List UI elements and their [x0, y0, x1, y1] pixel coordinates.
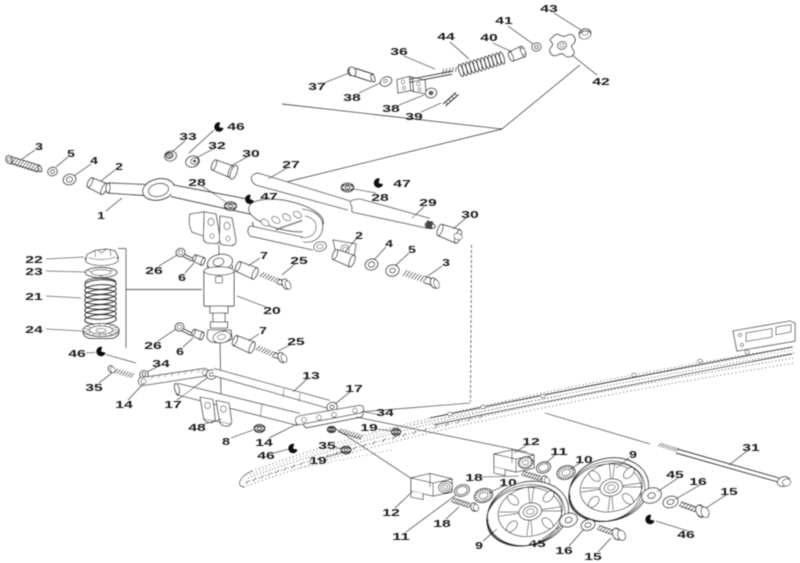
svg-text:30: 30	[461, 209, 479, 221]
svg-text:30: 30	[242, 148, 260, 160]
svg-text:17: 17	[345, 383, 363, 395]
svg-text:28: 28	[371, 192, 389, 204]
svg-text:35: 35	[318, 440, 336, 452]
svg-text:16: 16	[689, 476, 707, 488]
svg-text:6: 6	[178, 272, 186, 284]
svg-text:7: 7	[259, 325, 267, 337]
svg-text:33: 33	[179, 131, 197, 143]
svg-text:14: 14	[115, 399, 133, 411]
svg-text:12: 12	[522, 436, 540, 448]
svg-text:38: 38	[382, 103, 400, 115]
svg-text:29: 29	[419, 197, 437, 209]
svg-text:42: 42	[592, 76, 610, 88]
svg-text:27: 27	[282, 159, 300, 171]
svg-text:5: 5	[67, 148, 75, 160]
svg-text:35: 35	[85, 382, 103, 394]
svg-text:9: 9	[629, 449, 637, 461]
svg-text:48: 48	[188, 422, 206, 434]
svg-text:8: 8	[222, 436, 230, 448]
svg-text:45: 45	[528, 538, 546, 550]
svg-text:14: 14	[255, 437, 273, 449]
svg-text:1: 1	[97, 210, 105, 222]
svg-text:10: 10	[499, 477, 517, 489]
svg-text:46: 46	[68, 348, 86, 360]
svg-text:41: 41	[495, 15, 513, 27]
svg-text:12: 12	[382, 507, 400, 519]
svg-text:11: 11	[392, 531, 410, 543]
svg-text:37: 37	[308, 81, 326, 93]
svg-text:26: 26	[145, 265, 163, 277]
svg-text:25: 25	[290, 255, 308, 267]
svg-text:2: 2	[115, 161, 123, 173]
svg-text:19: 19	[309, 455, 327, 467]
svg-text:17: 17	[164, 399, 182, 411]
svg-text:16: 16	[555, 545, 573, 557]
svg-text:24: 24	[25, 324, 43, 336]
svg-text:4: 4	[385, 238, 393, 250]
svg-text:20: 20	[263, 305, 281, 317]
svg-text:40: 40	[480, 32, 498, 44]
svg-text:7: 7	[260, 250, 268, 262]
svg-text:36: 36	[390, 46, 408, 58]
svg-text:23: 23	[25, 266, 43, 278]
svg-text:46: 46	[257, 450, 275, 462]
svg-text:21: 21	[25, 291, 43, 303]
svg-text:44: 44	[437, 31, 455, 43]
svg-text:46: 46	[227, 121, 245, 133]
svg-text:10: 10	[575, 454, 593, 466]
svg-text:3: 3	[442, 257, 450, 269]
svg-text:39: 39	[405, 111, 423, 123]
svg-text:28: 28	[188, 177, 206, 189]
svg-text:15: 15	[720, 486, 738, 498]
svg-text:2: 2	[355, 230, 363, 242]
svg-text:15: 15	[584, 551, 602, 563]
svg-text:47: 47	[393, 178, 411, 190]
svg-text:31: 31	[742, 442, 760, 454]
svg-text:26: 26	[144, 340, 162, 352]
svg-text:3: 3	[35, 141, 43, 153]
svg-text:46: 46	[677, 529, 695, 541]
svg-text:25: 25	[287, 336, 305, 348]
svg-text:43: 43	[540, 3, 558, 15]
svg-text:5: 5	[408, 244, 416, 256]
svg-text:11: 11	[550, 446, 568, 458]
svg-text:6: 6	[176, 346, 184, 358]
svg-text:34: 34	[152, 358, 170, 370]
svg-text:34: 34	[376, 407, 394, 419]
svg-text:4: 4	[90, 155, 98, 167]
svg-text:18: 18	[465, 472, 483, 484]
svg-text:18: 18	[433, 518, 451, 530]
svg-text:9: 9	[475, 540, 483, 552]
svg-text:38: 38	[343, 92, 361, 104]
svg-text:22: 22	[25, 254, 43, 266]
svg-text:13: 13	[302, 370, 320, 382]
svg-text:45: 45	[666, 469, 684, 481]
svg-text:19: 19	[360, 422, 378, 434]
svg-text:32: 32	[208, 140, 226, 152]
svg-text:47: 47	[260, 191, 278, 203]
